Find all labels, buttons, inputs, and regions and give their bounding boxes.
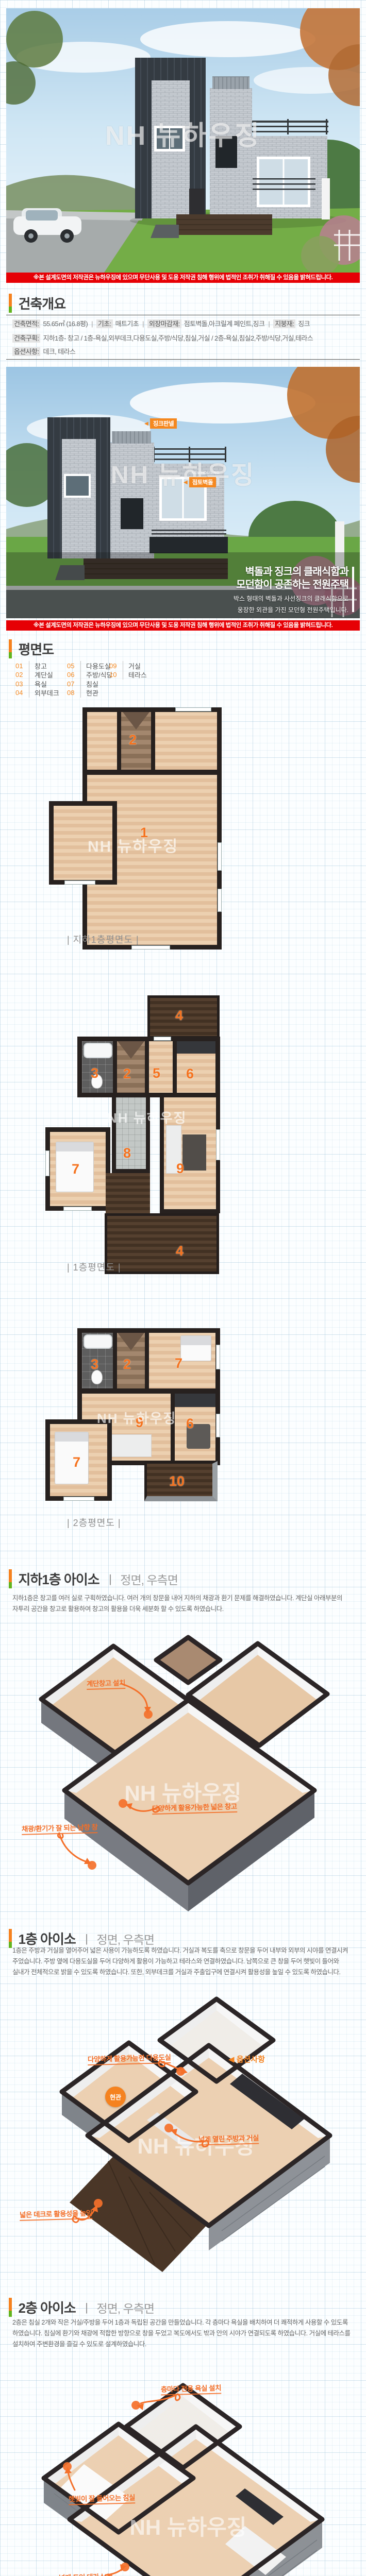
bed	[180, 1335, 211, 1361]
window	[154, 1037, 171, 1041]
separator: |	[268, 320, 270, 328]
legend-number: 04	[15, 689, 27, 697]
separator: |	[85, 1932, 88, 1945]
room-number: 8	[123, 1145, 131, 1161]
marker-dot	[144, 1710, 153, 1719]
annotation-option-item: ◀ 옵션사항	[228, 2054, 265, 2064]
separator: |	[142, 320, 144, 328]
legend-number: 03	[15, 680, 27, 688]
section-accent-bar	[9, 2298, 12, 2317]
legend-number: 01	[15, 662, 27, 670]
iso-1f-description: 1층은 주방과 거실을 열어주어 넓은 사용이 가능하도록 하였습니다. 거실과…	[12, 1945, 355, 1978]
sofa	[107, 1434, 152, 1457]
legend-number: 07	[67, 680, 78, 688]
room-number: 7	[72, 1161, 79, 1177]
bathtub	[84, 1043, 112, 1058]
window	[218, 889, 222, 912]
separator: |	[109, 1572, 112, 1586]
legend-item: 04외부데크	[15, 688, 59, 698]
marker-dot	[176, 2067, 185, 2076]
legend-label: 계단실	[29, 670, 53, 680]
legend-label: 현관	[80, 688, 98, 698]
section-accent-bar	[9, 1929, 12, 1948]
corridor	[106, 1173, 150, 1213]
window	[64, 880, 95, 885]
copyright-notice-bar: ※본 설계도면의 저작권은 뉴하우징에 있으며 무단사용 및 도용 저작권 침해…	[6, 273, 360, 283]
room-number: 2	[123, 1357, 131, 1372]
brand-label: NEWHOUSING	[192, 471, 220, 475]
annotation-bathroom-each-floor: 층마다 전용 욕실 설치	[161, 2382, 222, 2395]
overview-value: 매트기초	[115, 320, 139, 328]
room-number: 4	[175, 1008, 183, 1024]
iso-view-2f: NH 뉴하우징	[23, 2372, 348, 2576]
annotation-wide-storage: 다양하게 활용가능한 넓은 창고	[152, 1801, 237, 1815]
floorplan-2f: 3 2 7 9 6 7 10 NH 뉴하우징	[45, 1328, 225, 1530]
iso-view-1f: NH 뉴하우징	[26, 1984, 345, 2293]
watermark: NH 뉴하우징	[130, 2515, 247, 2539]
hero2-subtitle-line1: 박스 형태의 벽돌과 사선징크의 클래식함으로	[132, 595, 348, 603]
section-overview-header: 건축개요	[9, 294, 65, 314]
page: NH 뉴하우징 ※본 설계도면의 저작권은 뉴하우징에 있으며 무단사용 및 도…	[0, 0, 366, 2576]
hero2-title-line1: 벽돌과 징크의 클래식함과	[132, 566, 348, 579]
legend-number: 05	[67, 662, 78, 670]
separator: |	[85, 2301, 88, 2314]
caption-2f-plan: | 2층평면도 |	[67, 1516, 121, 1529]
overview-label: 건축면적:	[12, 319, 40, 328]
copyright-notice-bar: ※본 설계도면의 저작권은 뉴하우징에 있으며 무단사용 및 도용 저작권 침해…	[6, 620, 360, 631]
brand-label: NEWHOUSING	[153, 413, 180, 416]
plan-block	[77, 1037, 220, 1097]
floorplan-title: 평면도	[18, 639, 54, 658]
window	[216, 1345, 220, 1369]
hero2-title-line2: 모던함이 공존하는 전원주택	[132, 579, 348, 591]
overview-row-1: 건축면적:55.65㎡ (16.8평)|기초:매트기초|외장마감재:점토벽돌,아…	[12, 318, 361, 328]
legend-label: 주방/식당	[80, 670, 112, 680]
marker-dot	[94, 2199, 103, 2208]
window	[131, 945, 170, 950]
hero2-accent-bar	[352, 567, 354, 612]
section-accent-bar	[9, 639, 12, 658]
window	[175, 707, 211, 711]
material-tag-zinc: NEWHOUSING ◀ 징크판넬	[144, 418, 177, 429]
marker-dot	[88, 1861, 96, 1870]
iso-1f-views: 정면, 우측면	[96, 1930, 154, 1947]
tag-label: 징크판넬	[150, 418, 177, 429]
iso-2f-description: 2층은 침실 2개와 작은 거실/주방을 두어 1층과 독립된 공간을 만들었습…	[12, 2317, 355, 2350]
window	[218, 842, 222, 871]
marker-dot	[131, 2401, 140, 2410]
watermark: NH 뉴하우징	[107, 1108, 187, 1127]
room-number: 4	[176, 1243, 184, 1259]
watermark: NH 뉴하우징	[88, 834, 178, 856]
annotation-sunny-bedroom: 햇빛이 잘 들어오는 침실	[69, 2492, 136, 2505]
room-number: 7	[175, 1355, 182, 1371]
section-iso-2f-header: 2층 아이소 | 정면, 우측면	[9, 2298, 154, 2318]
legend-number: 08	[67, 689, 78, 697]
annotation-stair-storage: 계단창고 설치	[87, 1677, 125, 1690]
window	[63, 1207, 92, 1211]
floorplan-1f: 4 3 2 5 6 7 8 9 4 NH 뉴하우징	[45, 994, 225, 1277]
entrance-badge: 현관	[105, 2087, 126, 2107]
marker-dot	[121, 2563, 129, 2571]
marker-dot	[164, 2124, 173, 2132]
left-arrow-icon: ◀	[184, 480, 188, 485]
legend-number: 02	[15, 671, 27, 679]
floorplan-basement: 2 1 NH 뉴하우징	[46, 707, 304, 961]
room-number: 10	[169, 1473, 185, 1489]
iso-basement-title: 지하1층 아이소	[18, 1569, 99, 1588]
overview-label: 옵션사항:	[12, 347, 40, 356]
annotation-open-kitchen-living: 넓게 열린 주방과 거실	[198, 2132, 259, 2145]
watermark: NH 뉴하우징	[6, 454, 360, 490]
rug	[182, 1134, 206, 1171]
room-number: 2	[123, 1066, 131, 1082]
watermark: NH 뉴하우징	[97, 1408, 176, 1427]
iso-basement-description: 지하1층은 창고를 여러 실로 구획하였습니다. 여러 개의 창문을 내어 지하…	[12, 1593, 355, 1615]
hero2-title-block: 벽돌과 징크의 클래식함과 모던함이 공존하는 전원주택 박스 형태의 벽돌과 …	[132, 566, 348, 614]
deck	[147, 995, 220, 1039]
kitchen-counter	[175, 1394, 215, 1407]
legend-item: 02계단실	[15, 670, 53, 680]
bathtub	[84, 1334, 112, 1349]
legend-number: 10	[109, 671, 121, 679]
separator: |	[91, 320, 93, 328]
overview-value: 지하1층- 창고 / 1층-욕실,외부데크,다용도실,주방/식당,침실,거실 /…	[43, 334, 313, 342]
room-number: 7	[73, 1454, 80, 1470]
overview-label: 기초:	[96, 319, 113, 328]
caption-basement-plan: | 지하1층평면도 |	[67, 933, 139, 946]
room-number: 9	[176, 1161, 184, 1177]
exterior-rendering-2: NH 뉴하우징 NEWHOUSING ◀ 징크판넬 NEWHOUSING ◀ 점…	[6, 367, 360, 618]
overview-label: 지붕재:	[273, 319, 295, 328]
exterior-rendering-1: NH 뉴하우징	[6, 8, 360, 273]
room-number: 3	[91, 1357, 98, 1372]
plan-block	[82, 707, 222, 774]
annotation-wide-deck: 넓은 데크로 활용성을 높임	[20, 2207, 92, 2221]
overview-value: 데크, 테라스	[43, 348, 75, 355]
annotation-utility-room: 다양하게 활용가능한 다용도실	[88, 2052, 171, 2065]
overview-title: 건축개요	[18, 294, 65, 313]
overview-label: 외장마감재:	[147, 319, 181, 328]
plan-block	[77, 1328, 220, 1393]
iso-basement-views: 정면, 우측면	[120, 1570, 178, 1588]
iso-view-basement: NH 뉴하우징	[28, 1623, 338, 1919]
overview-value: 점토벽돌,아크릴계 페인트,징크	[184, 320, 265, 328]
annotation-open-terrace-view: 넓게 트인 테라스 뷰	[59, 2571, 113, 2576]
section-floorplan-header: 평면도	[9, 639, 54, 660]
legend-item: 06주방/식당	[67, 670, 112, 680]
room-number: 3	[91, 1065, 98, 1081]
bed	[55, 1432, 89, 1484]
legend-label: 테라스	[123, 670, 147, 680]
room-number: 6	[186, 1066, 194, 1082]
legend-item: 10테라스	[109, 670, 147, 680]
marker-dot	[63, 2462, 72, 2471]
legend-item: 08현관	[67, 688, 98, 698]
section-iso-basement-header: 지하1층 아이소 | 정면, 우측면	[9, 1569, 178, 1590]
section-accent-bar	[9, 294, 12, 313]
kitchen-counter	[177, 1041, 215, 1054]
room-number: 2	[129, 732, 137, 748]
iso-2f-views: 정면, 우측면	[96, 2299, 154, 2316]
overview-row-2: 건축구획:지하1층- 창고 / 1층-욕실,외부데크,다용도실,주방/식당,침실…	[12, 333, 361, 343]
overview-row-3: 옵션사항:데크, 테라스	[12, 346, 361, 356]
divider	[6, 359, 360, 360]
material-tag-brick: NEWHOUSING ◀ 점토벽돌	[184, 477, 216, 487]
caption-1f-plan: | 1층평면도 |	[67, 1260, 121, 1274]
window	[63, 1497, 94, 1501]
window	[216, 1129, 220, 1160]
watermark: NH 뉴하우징	[6, 114, 360, 152]
room-number: 5	[153, 1065, 160, 1081]
window	[45, 1150, 49, 1176]
left-arrow-icon: ◀	[144, 421, 148, 427]
divider	[6, 315, 360, 315]
section-accent-bar	[9, 1569, 12, 1588]
window	[216, 1414, 220, 1437]
deck	[105, 1213, 219, 1274]
tag-label: 점토벽돌	[189, 477, 216, 487]
overview-label: 건축구획:	[12, 334, 40, 343]
iso-2f-title: 2층 아이소	[18, 2298, 75, 2317]
legend-number: 09	[109, 662, 121, 670]
hero2-subtitle-line2: 웅장한 외관을 가진 모던형 전원주택입니다.	[132, 606, 348, 614]
room-number: 6	[186, 1416, 194, 1432]
legend-label: 외부데크	[29, 688, 59, 698]
annotation-south-window: 채광/환기가 잘 되는 남향 창	[22, 1821, 98, 1835]
overview-value: 55.65㎡ (16.8평)	[43, 320, 88, 328]
marker-dot	[119, 1799, 127, 1808]
overview-value: 징크	[298, 320, 310, 328]
legend-number: 06	[67, 671, 78, 679]
